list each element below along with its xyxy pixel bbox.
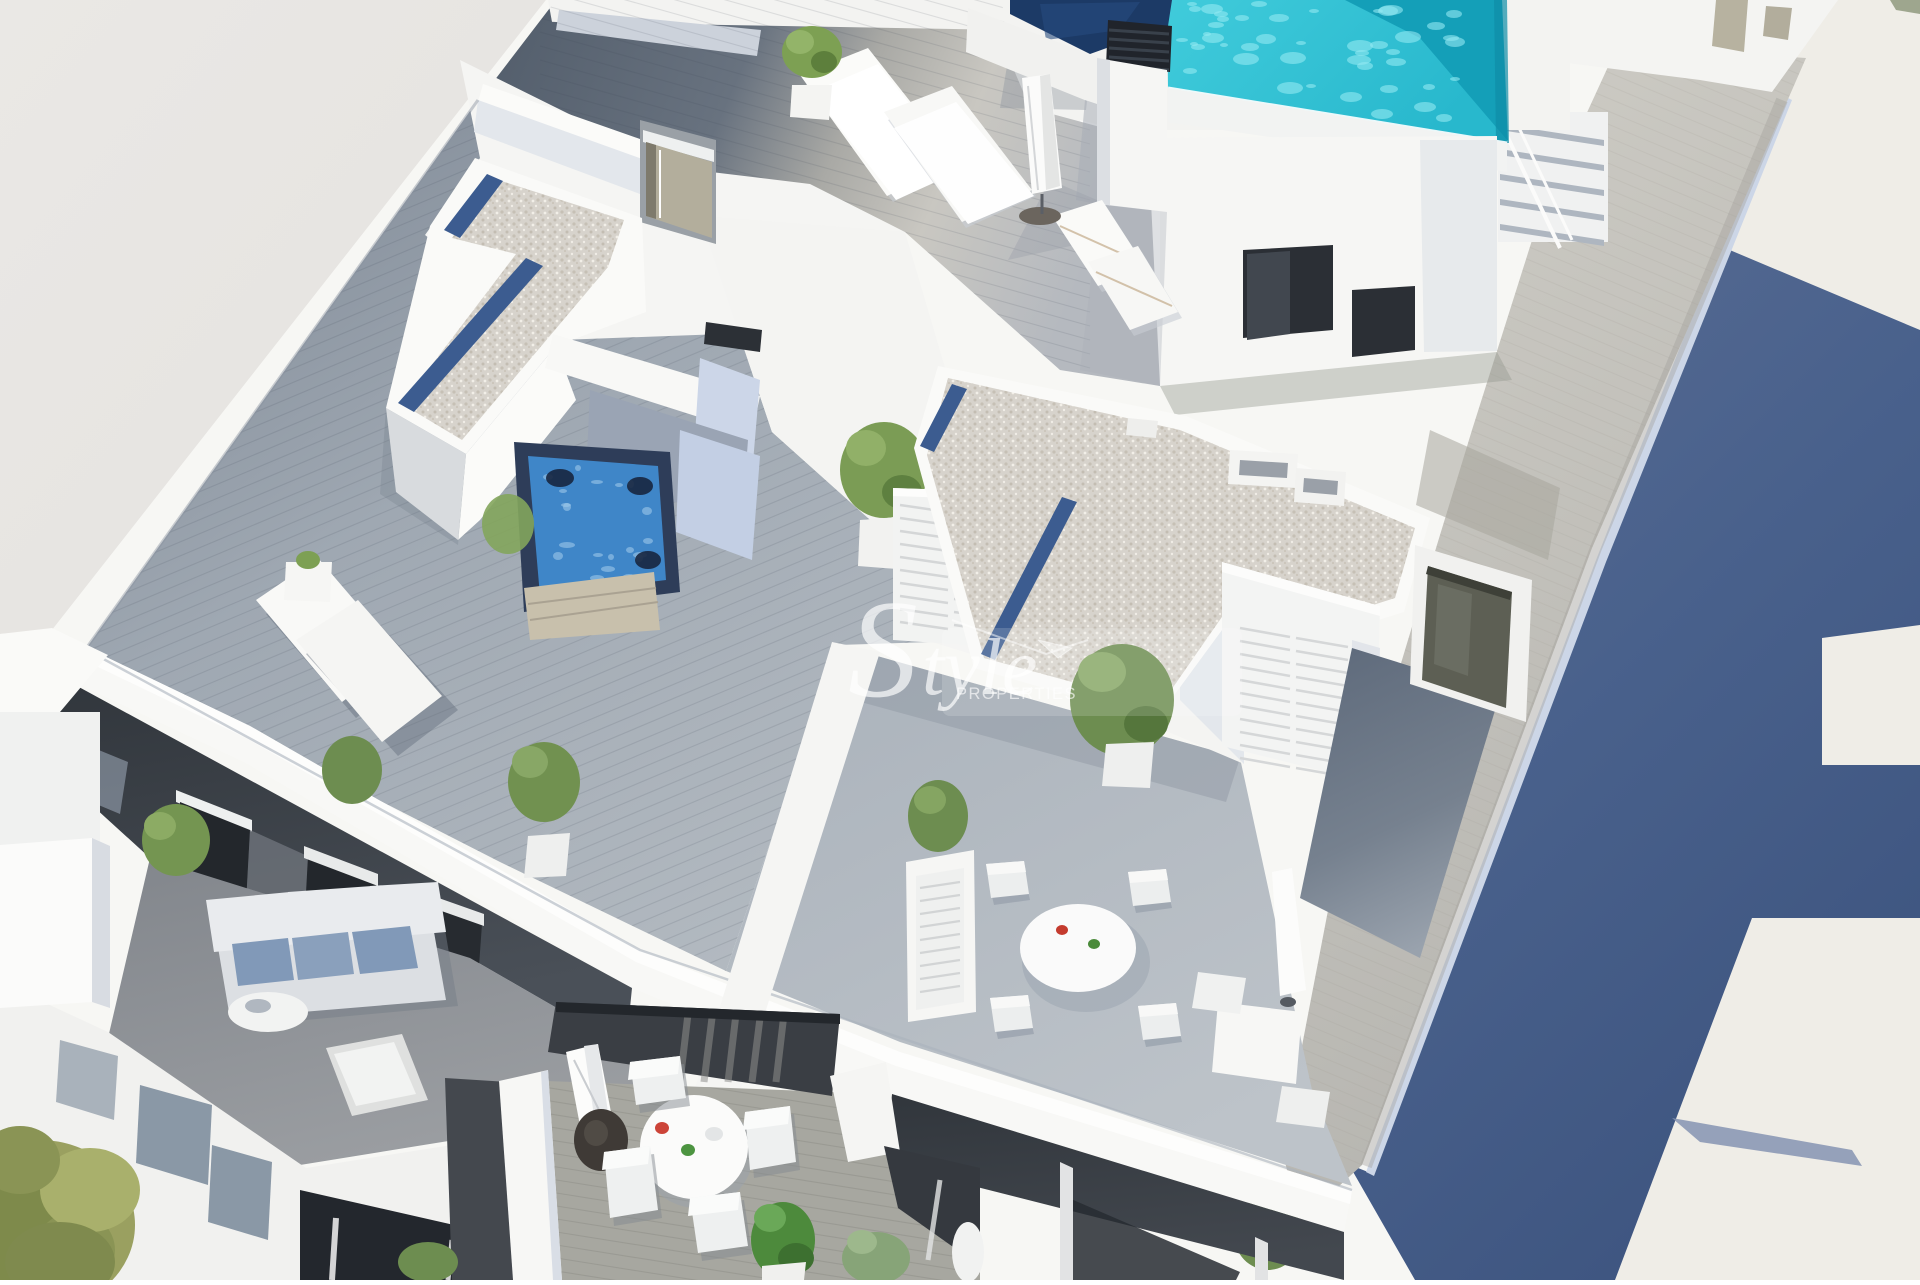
svg-text:PROPERTIES: PROPERTIES [956, 685, 1077, 703]
svg-text:S: S [848, 572, 918, 727]
